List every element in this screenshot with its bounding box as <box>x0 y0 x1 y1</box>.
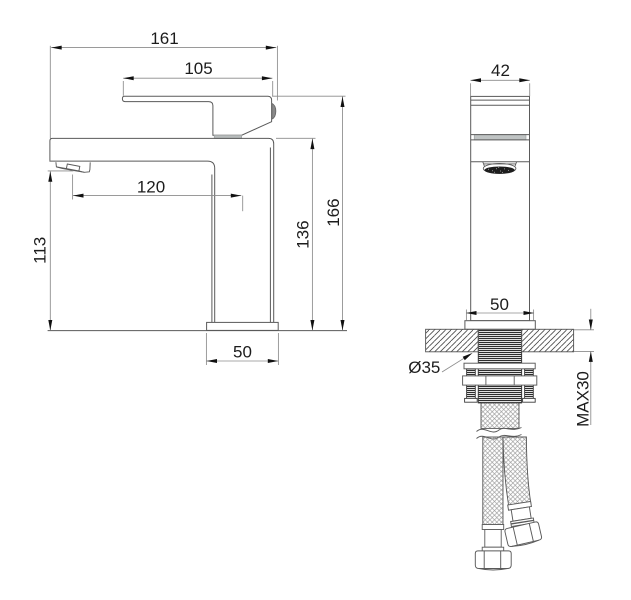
svg-text:42: 42 <box>491 61 510 80</box>
svg-text:166: 166 <box>324 198 343 226</box>
svg-text:50: 50 <box>490 295 509 314</box>
svg-text:Ø35: Ø35 <box>408 358 440 377</box>
svg-text:105: 105 <box>184 59 212 78</box>
svg-text:50: 50 <box>233 343 252 362</box>
svg-text:161: 161 <box>150 29 178 48</box>
svg-text:MAX30: MAX30 <box>574 371 593 427</box>
svg-text:120: 120 <box>137 178 165 197</box>
svg-text:136: 136 <box>294 220 313 248</box>
svg-text:113: 113 <box>30 237 49 264</box>
